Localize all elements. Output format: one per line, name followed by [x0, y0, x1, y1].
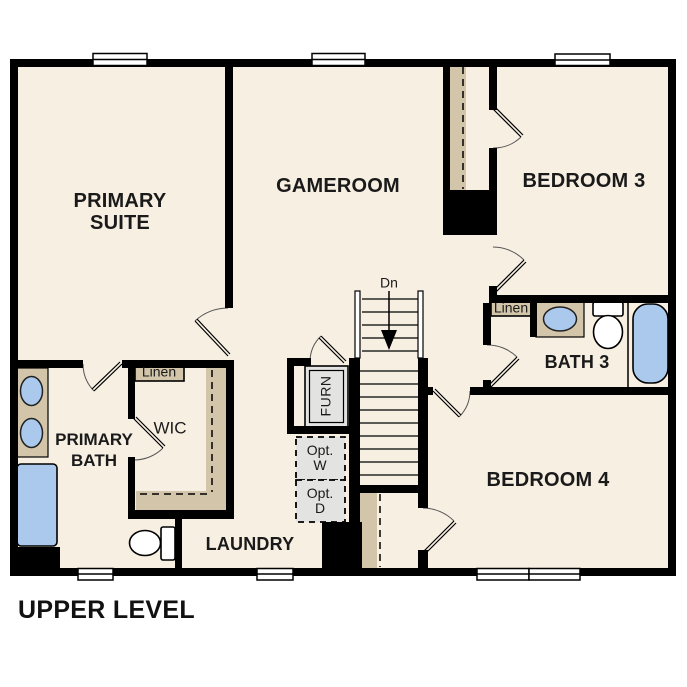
- interior-wall: [483, 303, 491, 345]
- sink-fixture: [21, 419, 43, 448]
- room-label-bedroom4: BEDROOM 4: [487, 469, 610, 491]
- wall-mass: [10, 547, 60, 568]
- interior-wall: [225, 59, 233, 308]
- interior-wall: [122, 360, 234, 368]
- interior-wall: [489, 148, 497, 190]
- label-line: Opt.: [307, 486, 333, 501]
- room-label-line: PRIMARY: [55, 429, 133, 450]
- room-label-bath3: BATH 3: [545, 353, 610, 373]
- label-line: Opt.: [307, 443, 333, 458]
- room-label-primary-bath: PRIMARY BATH: [55, 429, 133, 471]
- stair-rail-right: [418, 291, 423, 358]
- room-label-line: PRIMARY: [74, 190, 167, 212]
- interior-wall: [128, 368, 135, 419]
- bedroom4-closet-shelf: [360, 493, 377, 568]
- toilet-tank: [161, 527, 175, 560]
- interior-wall: [287, 358, 294, 434]
- room-label-bedroom3: BEDROOM 3: [523, 170, 646, 192]
- label-linen-primary: Linen: [142, 364, 176, 379]
- interior-wall: [489, 66, 497, 110]
- label-furnace: FURN: [318, 376, 333, 417]
- label-line: D: [307, 501, 333, 516]
- room-label-laundry: LAUNDRY: [206, 535, 295, 555]
- interior-wall: [470, 387, 676, 395]
- interior-wall: [418, 387, 433, 395]
- label-linen-bath3: Linen: [494, 300, 528, 315]
- toilet-fixture: [594, 316, 623, 349]
- wall-mass: [322, 522, 362, 568]
- interior-wall: [349, 485, 428, 493]
- wic-shelf-right: [206, 368, 227, 511]
- floor-plan: PRIMARY SUITE GAMEROOM BEDROOM 3 BATH 3 …: [0, 0, 687, 687]
- floor-plan-drawing: [0, 0, 687, 687]
- label-line: W: [307, 458, 333, 473]
- toilet-tank: [593, 302, 623, 316]
- toilet-fixture: [130, 531, 161, 556]
- interior-wall: [175, 519, 182, 569]
- interior-wall: [287, 426, 357, 434]
- exterior-wall-left: [10, 59, 18, 576]
- tub-fixture: [633, 304, 668, 383]
- shower-fixture: [17, 464, 57, 546]
- room-label-gameroom: GAMEROOM: [276, 175, 400, 197]
- label-optional-washer: Opt. W: [307, 443, 333, 473]
- page-title: UPPER LEVEL: [18, 596, 195, 625]
- interior-wall: [287, 358, 311, 366]
- room-label-line: SUITE: [74, 212, 167, 234]
- room-label-primary-suite: PRIMARY SUITE: [74, 190, 167, 234]
- room-label-line: BATH: [55, 450, 133, 471]
- interior-wall: [226, 360, 234, 518]
- sink-fixture: [544, 307, 577, 331]
- label-optional-dryer: Opt. D: [307, 486, 333, 516]
- interior-wall: [10, 360, 83, 368]
- room-label-wic: WIC: [153, 420, 186, 439]
- interior-wall: [418, 550, 428, 568]
- interior-wall: [530, 303, 537, 337]
- chase-block: [443, 190, 497, 235]
- label-stairs-down: Dn: [380, 275, 398, 290]
- interior-wall: [128, 510, 234, 519]
- sink-fixture: [21, 377, 43, 406]
- exterior-wall-right: [668, 59, 676, 576]
- stair-rail-left: [355, 291, 360, 358]
